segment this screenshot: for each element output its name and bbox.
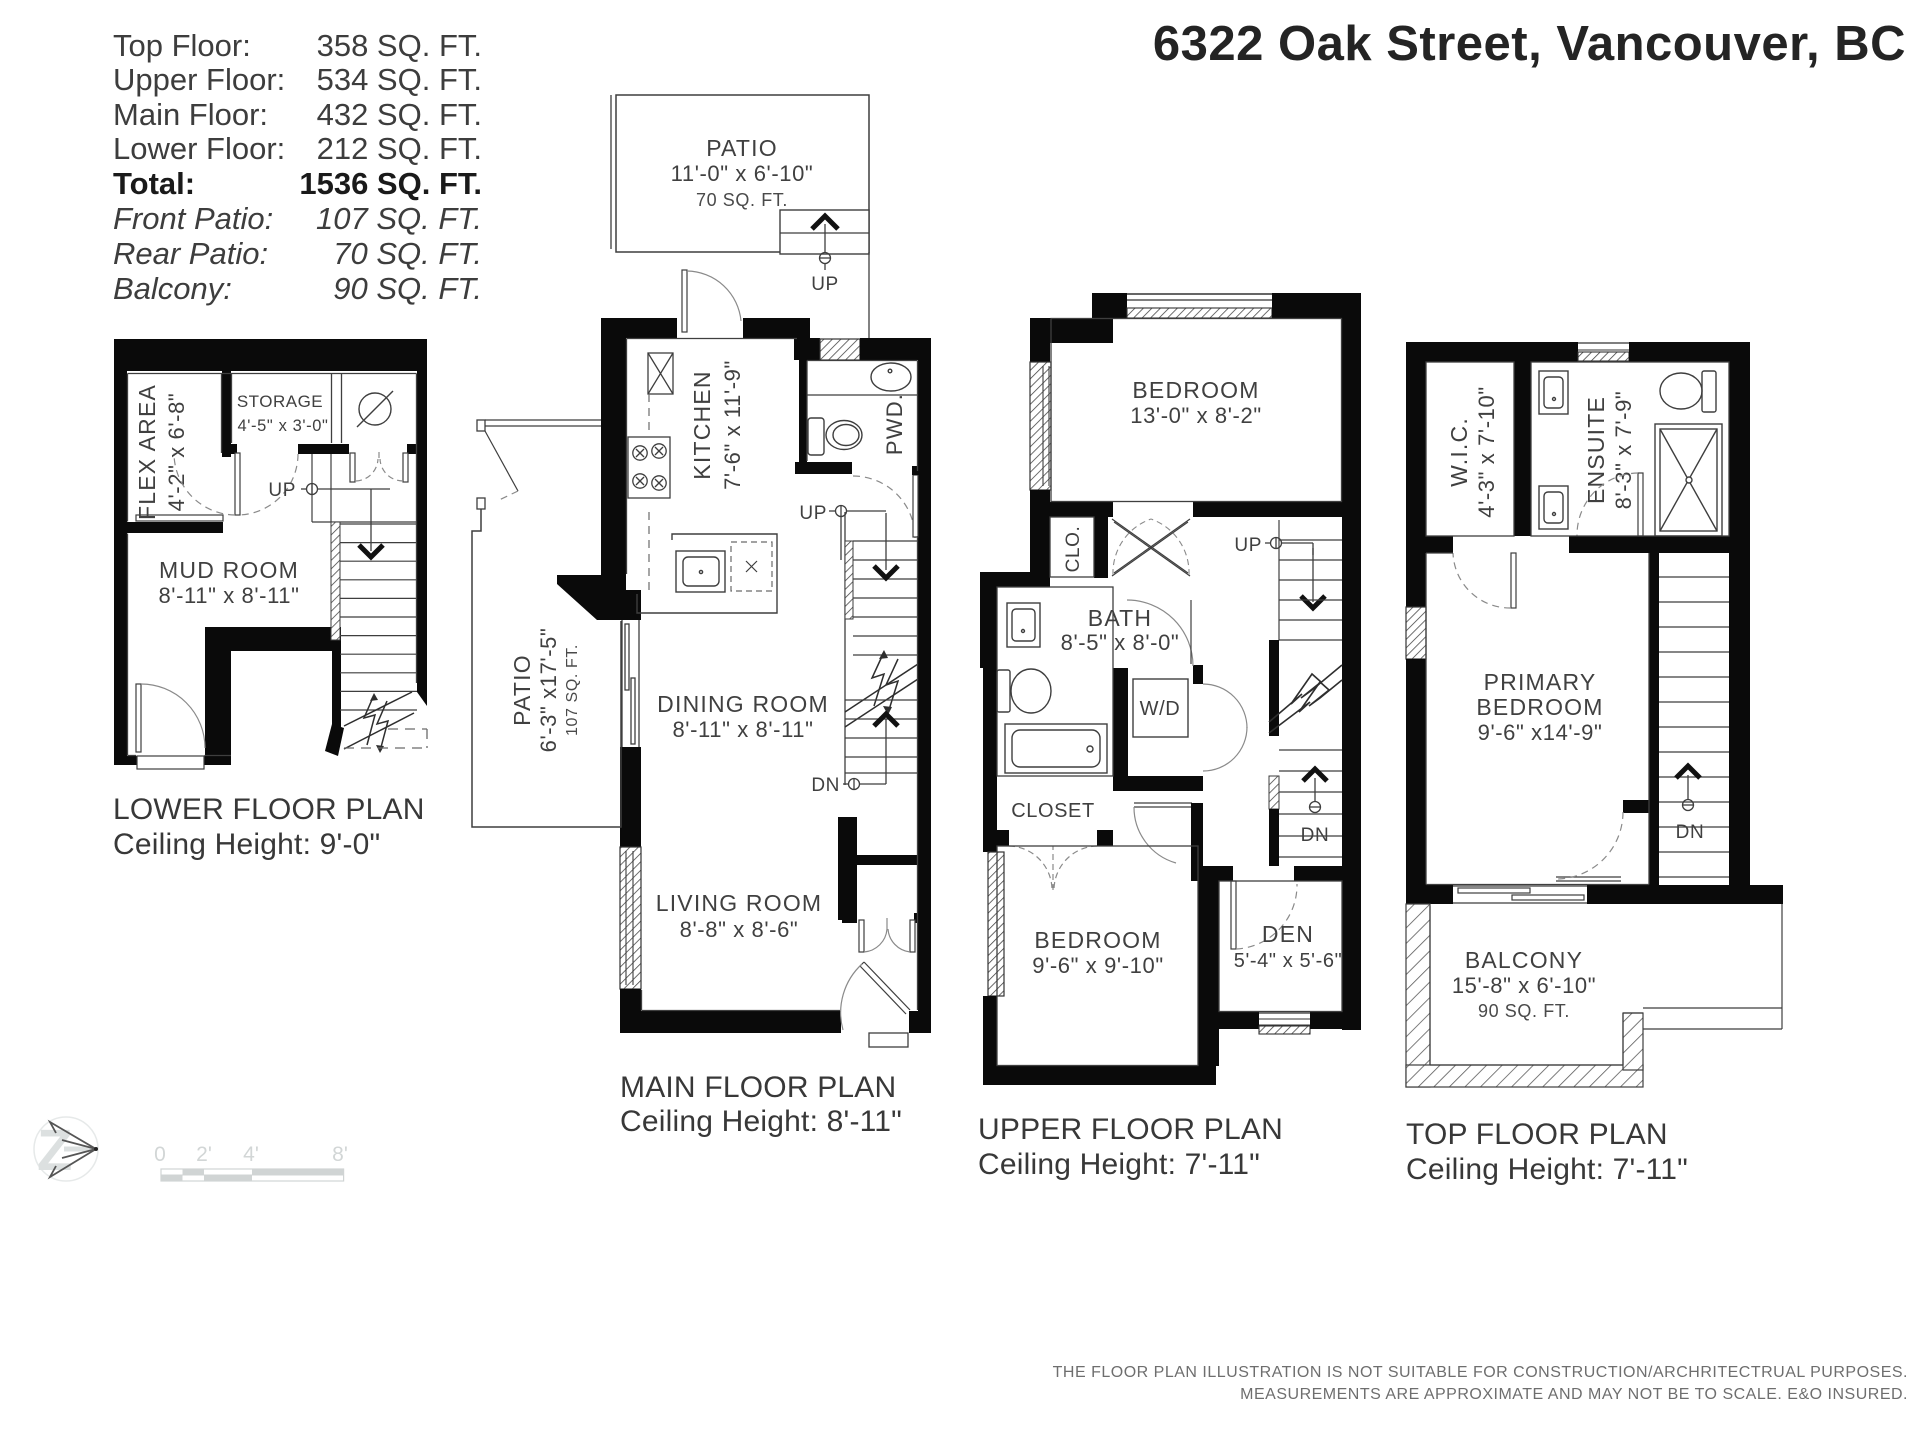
svg-text:STORAGE: STORAGE <box>237 392 323 411</box>
svg-text:8': 8' <box>332 1143 348 1166</box>
svg-text:KITCHEN: KITCHEN <box>689 370 715 479</box>
svg-text:TOP FLOOR PLAN: TOP FLOOR PLAN <box>1406 1118 1668 1151</box>
svg-text:UP: UP <box>811 274 839 295</box>
svg-text:Ceiling Height: 8'-11": Ceiling Height: 8'-11" <box>620 1105 902 1138</box>
svg-text:212 SQ. FT.: 212 SQ. FT. <box>317 131 482 166</box>
svg-text:MEASUREMENTS ARE APPROXIMATE A: MEASUREMENTS ARE APPROXIMATE AND MAY NOT… <box>1240 1386 1908 1403</box>
svg-text:Ceiling Height: 7'-11": Ceiling Height: 7'-11" <box>1406 1153 1688 1186</box>
svg-text:DN: DN <box>1301 825 1330 846</box>
svg-text:11'-0" x 6'-10": 11'-0" x 6'-10" <box>671 161 814 186</box>
svg-text:107 SQ. FT.: 107 SQ. FT. <box>564 644 581 736</box>
svg-text:8'-5" x 8'-0": 8'-5" x 8'-0" <box>1061 630 1180 655</box>
svg-text:PATIO: PATIO <box>509 654 535 726</box>
svg-text:CLO.: CLO. <box>1063 526 1084 573</box>
svg-text:6'-3" x17'-5": 6'-3" x17'-5" <box>536 628 561 753</box>
svg-text:Front Patio:: Front Patio: <box>113 201 273 236</box>
svg-text:4'-5" x 3'-0": 4'-5" x 3'-0" <box>238 417 329 435</box>
svg-text:2': 2' <box>196 1143 212 1166</box>
svg-text:LIVING ROOM: LIVING ROOM <box>656 890 823 916</box>
svg-text:UP: UP <box>1234 535 1262 556</box>
svg-text:Total:: Total: <box>113 166 195 201</box>
svg-text:8'-11" x 8'-11": 8'-11" x 8'-11" <box>672 717 813 742</box>
svg-text:W.I.C.: W.I.C. <box>1446 417 1472 487</box>
svg-text:PWD.: PWD. <box>882 393 907 455</box>
svg-text:Ceiling Height: 7'-11": Ceiling Height: 7'-11" <box>978 1148 1260 1181</box>
svg-text:4'-2" x 6'-8": 4'-2" x 6'-8" <box>164 393 189 512</box>
svg-text:0: 0 <box>154 1143 166 1166</box>
svg-text:DEN: DEN <box>1262 921 1314 947</box>
svg-text:432 SQ. FT.: 432 SQ. FT. <box>317 97 482 132</box>
svg-text:6322 Oak Street, Vancouver, BC: 6322 Oak Street, Vancouver, BC <box>1153 17 1906 71</box>
svg-text:1536 SQ. FT.: 1536 SQ. FT. <box>299 166 482 201</box>
svg-text:70 SQ. FT.: 70 SQ. FT. <box>333 236 482 271</box>
svg-text:Lower Floor:: Lower Floor: <box>113 131 285 166</box>
svg-text:8'-11" x 8'-11": 8'-11" x 8'-11" <box>158 583 299 608</box>
svg-text:PRIMARY: PRIMARY <box>1484 669 1597 695</box>
svg-text:BEDROOM: BEDROOM <box>1476 694 1603 720</box>
svg-text:BATH: BATH <box>1088 605 1152 631</box>
svg-text:THE FLOOR PLAN ILLUSTRATION IS: THE FLOOR PLAN ILLUSTRATION IS NOT SUITA… <box>1053 1364 1908 1381</box>
svg-text:5'-4" x 5'-6": 5'-4" x 5'-6" <box>1234 950 1343 972</box>
svg-text:15'-8" x 6'-10": 15'-8" x 6'-10" <box>1452 973 1596 998</box>
svg-text:LOWER FLOOR PLAN: LOWER FLOOR PLAN <box>113 793 425 826</box>
svg-text:FLEX AREA: FLEX AREA <box>134 384 160 520</box>
svg-text:ENSUITE: ENSUITE <box>1583 396 1609 504</box>
svg-text:Rear Patio:: Rear Patio: <box>113 236 268 271</box>
svg-text:BEDROOM: BEDROOM <box>1132 377 1259 403</box>
svg-text:MUD ROOM: MUD ROOM <box>159 557 299 583</box>
svg-text:90 SQ. FT.: 90 SQ. FT. <box>333 271 482 306</box>
svg-text:Balcony:: Balcony: <box>113 271 232 306</box>
svg-text:107 SQ. FT.: 107 SQ. FT. <box>316 201 482 236</box>
svg-text:BEDROOM: BEDROOM <box>1034 927 1161 953</box>
svg-text:70 SQ. FT.: 70 SQ. FT. <box>696 190 788 210</box>
svg-text:MAIN FLOOR PLAN: MAIN FLOOR PLAN <box>620 1071 896 1104</box>
svg-text:DN: DN <box>1676 822 1705 843</box>
svg-text:4'-3" x 7'-10": 4'-3" x 7'-10" <box>1474 386 1499 517</box>
svg-text:9'-6" x 9'-10": 9'-6" x 9'-10" <box>1032 953 1163 978</box>
svg-text:8'-3" x 7'-9": 8'-3" x 7'-9" <box>1611 391 1636 510</box>
svg-text:Main Floor:: Main Floor: <box>113 97 268 132</box>
svg-text:DINING ROOM: DINING ROOM <box>657 691 829 717</box>
svg-text:90 SQ. FT.: 90 SQ. FT. <box>1478 1001 1570 1021</box>
svg-text:CLOSET: CLOSET <box>1011 800 1095 822</box>
svg-text:534 SQ. FT.: 534 SQ. FT. <box>317 62 482 97</box>
svg-text:4': 4' <box>243 1143 259 1166</box>
svg-text:BALCONY: BALCONY <box>1465 947 1583 973</box>
svg-text:Upper Floor:: Upper Floor: <box>113 62 285 97</box>
svg-text:UP: UP <box>268 480 296 501</box>
svg-text:13'-0" x 8'-2": 13'-0" x 8'-2" <box>1130 403 1261 428</box>
svg-text:Top Floor:: Top Floor: <box>113 28 251 63</box>
svg-text:W/D: W/D <box>1140 698 1181 720</box>
svg-text:PATIO: PATIO <box>706 135 778 161</box>
svg-text:DN: DN <box>811 775 840 796</box>
svg-text:8'-8" x 8'-6": 8'-8" x 8'-6" <box>680 917 799 942</box>
svg-text:UP: UP <box>799 503 827 524</box>
svg-text:358 SQ. FT.: 358 SQ. FT. <box>317 28 482 63</box>
svg-text:Ceiling Height: 9'-0": Ceiling Height: 9'-0" <box>113 828 380 861</box>
svg-text:9'-6" x14'-9": 9'-6" x14'-9" <box>1478 720 1603 745</box>
svg-text:UPPER FLOOR PLAN: UPPER FLOOR PLAN <box>978 1113 1283 1146</box>
svg-text:7'-6" x 11'-9": 7'-6" x 11'-9" <box>720 360 745 490</box>
